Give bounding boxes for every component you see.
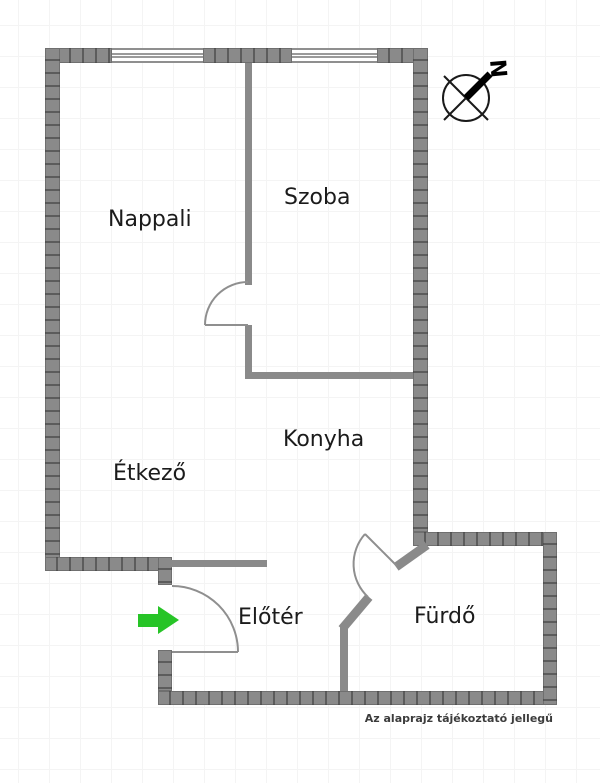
door-swing-arc xyxy=(172,586,238,652)
diagonal-wall-lower xyxy=(342,597,369,629)
door-furdo xyxy=(354,534,397,597)
plan-overlay-graphics: N xyxy=(0,0,600,783)
compass-icon: N xyxy=(443,58,511,121)
room-label-szoba: Szoba xyxy=(284,185,350,210)
room-label-konyha: Konyha xyxy=(283,427,364,452)
room-label-nappali: Nappali xyxy=(108,207,192,232)
door-leaf xyxy=(365,534,397,566)
door-swing-arc xyxy=(354,534,368,597)
entrance-arrow-icon xyxy=(138,606,179,634)
door-entrance xyxy=(172,586,238,652)
diagonal-wall-upper xyxy=(396,545,427,567)
disclaimer-text: Az alaprajz tájékoztató jellegű xyxy=(365,712,553,725)
floorplan: N Nappali Szoba Konyha Étkező Előtér Für… xyxy=(0,0,600,783)
compass-north-label: N xyxy=(484,58,511,79)
room-label-eloter: Előtér xyxy=(238,605,303,630)
door-nappali xyxy=(205,282,248,325)
room-label-etkezo: Étkező xyxy=(113,461,186,486)
room-label-furdo: Fürdő xyxy=(414,604,475,629)
door-swing-arc xyxy=(205,282,248,325)
